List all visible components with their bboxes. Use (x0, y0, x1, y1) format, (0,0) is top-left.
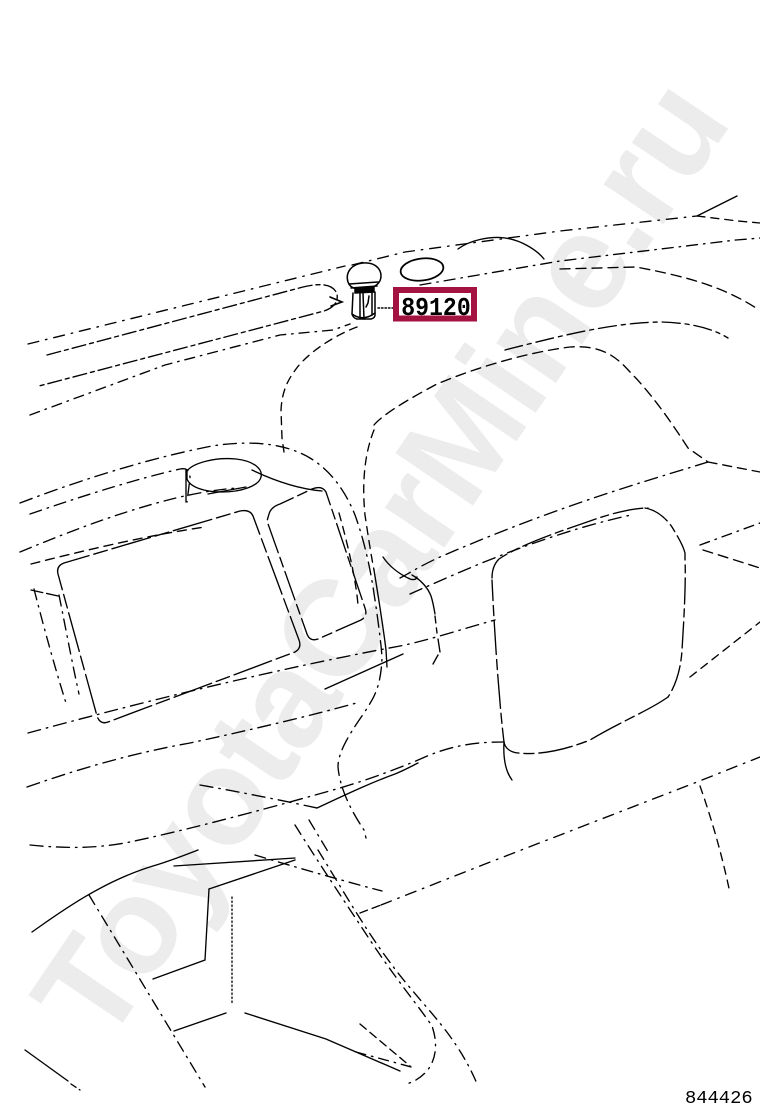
svg-text:844426: 844426 (685, 1087, 753, 1109)
svg-text:ToyotaCarMine.ru: ToyotaCarMine.ru (3, 54, 756, 1066)
svg-text:89120: 89120 (401, 295, 470, 324)
